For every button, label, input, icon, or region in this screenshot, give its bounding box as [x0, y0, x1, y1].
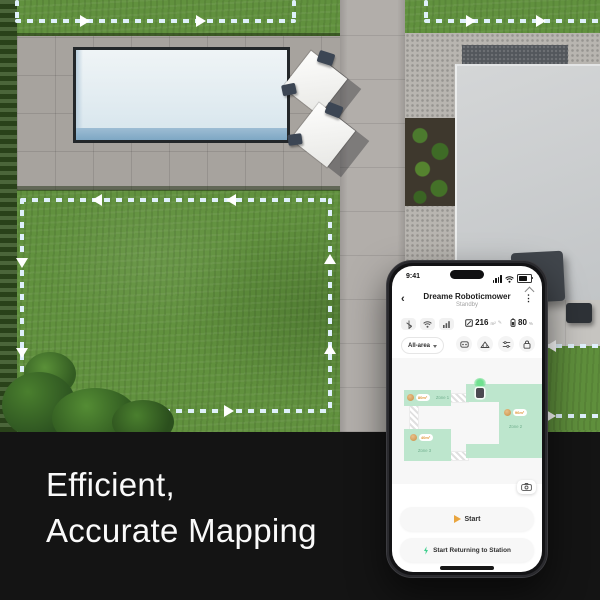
home-indicator: [440, 566, 494, 570]
robot-mower-marker: [476, 388, 484, 398]
map-zone-1[interactable]: 80m² Zone 1: [404, 390, 451, 406]
battery-icon: [517, 274, 532, 283]
area-selector-label: All-area: [408, 343, 430, 349]
wifi-chip[interactable]: [420, 318, 435, 330]
zone-progress-icon: [504, 409, 511, 416]
path-arrow-up-icon: [324, 254, 336, 264]
boundary-dash: [328, 198, 332, 413]
path-arrow-right-icon: [80, 15, 90, 27]
headline: Efficient, Accurate Mapping: [46, 462, 317, 554]
map-zone-2[interactable]: [466, 444, 500, 458]
phone-mockup: 9:41 ‹ Dreame Roboticmower Standby ⋮: [386, 260, 548, 578]
outdoor-object: [566, 303, 592, 323]
path-arrow-right-icon: [196, 15, 206, 27]
map-zone-3[interactable]: 40m² Zone 3: [404, 429, 451, 461]
area-icon: [465, 319, 473, 327]
cellular-signal-icon: [493, 275, 502, 283]
pool-deep-edge: [76, 128, 287, 140]
zone-badge: 80m²: [407, 394, 430, 401]
path-arrow-left-icon: [92, 194, 102, 206]
zone-area-pill: 80m²: [416, 394, 430, 400]
more-menu-button[interactable]: ⋮: [524, 293, 533, 304]
swimming-pool: [73, 47, 290, 143]
zone-label: Zone 3: [418, 448, 431, 453]
status-time: 9:41: [406, 273, 420, 280]
roof-dark-mat: [462, 45, 568, 64]
battery-value: 80: [518, 319, 527, 327]
zone-area-pill: 40m²: [419, 434, 433, 440]
camera-button[interactable]: [517, 480, 536, 494]
area-unit: m²: [490, 321, 495, 327]
zone-label: Zone 1: [436, 395, 449, 400]
camera-icon: [521, 483, 532, 491]
zone-label: Zone 2: [509, 424, 522, 429]
area-value: 216: [475, 319, 488, 327]
path-arrow-up-icon: [324, 344, 336, 354]
status-icons: [493, 274, 532, 283]
edit-icon[interactable]: ✎: [498, 320, 502, 327]
zone-badge: 96m²: [504, 409, 527, 416]
lock-button[interactable]: [519, 336, 535, 352]
hero-screenshot: Efficient, Accurate Mapping 9:41 ‹ Dream…: [0, 0, 600, 600]
boundary-dash: [15, 19, 296, 23]
hedge-strip: [0, 0, 17, 432]
battery-level-icon: [510, 318, 516, 327]
area-stat: 216 m² ✎: [465, 319, 502, 327]
boundary-dash: [20, 198, 332, 202]
settings-sliders-button[interactable]: [498, 336, 514, 352]
dynamic-island: [450, 270, 484, 279]
boundary-dash: [424, 19, 600, 23]
path-arrow-down-icon: [16, 348, 28, 358]
map-zone-2[interactable]: 96m² Zone 2: [499, 402, 542, 458]
pool-shallow-edge: [76, 50, 83, 128]
page-title: Dreame Roboticmower: [392, 292, 542, 301]
path-arrow-right-icon: [224, 405, 234, 417]
lawn-edge-shadow-bottom: [17, 186, 345, 191]
remote-control-button[interactable]: [456, 336, 472, 352]
zone-badge: 40m²: [410, 434, 433, 441]
start-button[interactable]: Start: [400, 507, 534, 531]
status-text: Standby: [392, 302, 542, 308]
app-header: ‹ Dreame Roboticmower Standby ⋮: [392, 290, 542, 314]
play-icon: [454, 515, 461, 523]
return-to-station-button[interactable]: Start Returning to Station: [400, 538, 534, 562]
area-selector[interactable]: All-area: [401, 337, 444, 354]
start-button-label: Start: [465, 516, 481, 523]
headline-line2: Accurate Mapping: [46, 508, 317, 554]
patio-chair: [287, 133, 302, 146]
zone-area-pill: 96m²: [513, 409, 527, 415]
path-arrow-right-icon: [536, 15, 546, 27]
headline-line1: Efficient,: [46, 462, 317, 508]
path-arrow-down-icon: [16, 258, 28, 268]
robot-status-light: [474, 378, 486, 388]
battery-stat: 80 %: [510, 318, 533, 327]
lawn-map: 80m² Zone 1 96m² Zone 2: [392, 358, 542, 484]
quick-action-buttons: [456, 336, 535, 352]
return-button-label: Start Returning to Station: [433, 547, 511, 554]
chevron-down-icon: [433, 345, 437, 350]
mow-zones-button[interactable]: [477, 336, 493, 352]
zone-progress-icon: [407, 394, 414, 401]
path-arrow-right-icon: [466, 15, 476, 27]
garden-bed: [405, 118, 455, 206]
flash-icon: [423, 546, 429, 555]
connectivity-chips: [401, 318, 454, 330]
app-screen: 9:41 ‹ Dreame Roboticmower Standby ⋮: [392, 266, 542, 572]
path-arrow-left-icon: [226, 194, 236, 206]
battery-unit: %: [529, 321, 533, 327]
boundary-dash: [292, 0, 296, 22]
wifi-icon: [505, 276, 514, 283]
zone-progress-icon: [410, 434, 417, 441]
bluetooth-chip[interactable]: [401, 318, 416, 330]
mow-stats: 216 m² ✎ 80 %: [465, 318, 533, 327]
signal-chip[interactable]: [439, 318, 454, 330]
control-row: All-area: [392, 336, 542, 356]
